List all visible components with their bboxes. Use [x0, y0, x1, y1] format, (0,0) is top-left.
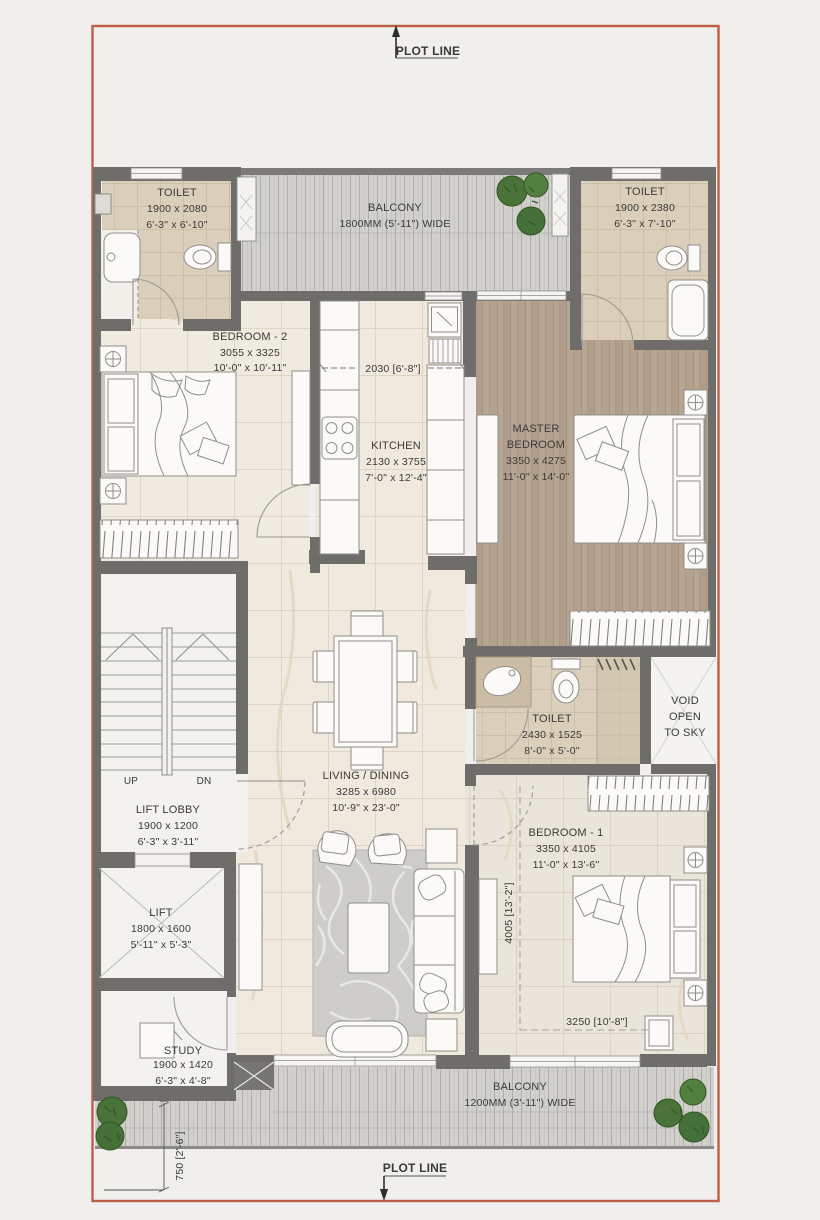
- svg-text:PLOT LINE: PLOT LINE: [383, 1161, 447, 1175]
- svg-text:4005 [13'-2"]: 4005 [13'-2"]: [503, 882, 515, 943]
- svg-text:10'-0" x 10'-11": 10'-0" x 10'-11": [214, 362, 287, 374]
- svg-text:MASTER: MASTER: [512, 423, 559, 435]
- svg-text:BEDROOM: BEDROOM: [507, 439, 565, 451]
- svg-text:5'-11" x 5'-3": 5'-11" x 5'-3": [131, 939, 192, 951]
- svg-text:1900 x 1420: 1900 x 1420: [153, 1059, 213, 1071]
- svg-text:LIFT LOBBY: LIFT LOBBY: [136, 804, 201, 816]
- svg-text:OPEN: OPEN: [669, 711, 701, 723]
- svg-text:BALCONY: BALCONY: [493, 1081, 547, 1093]
- svg-text:DN: DN: [197, 776, 212, 787]
- svg-text:6'-3" x 6'-10": 6'-3" x 6'-10": [146, 219, 208, 231]
- svg-text:2430 x 1525: 2430 x 1525: [522, 729, 582, 741]
- svg-text:1800MM (5'-11") WIDE: 1800MM (5'-11") WIDE: [339, 218, 450, 230]
- svg-text:7'-0" x 12'-4": 7'-0" x 12'-4": [365, 472, 427, 484]
- svg-text:TO SKY: TO SKY: [664, 727, 706, 739]
- svg-text:2130 x 3755: 2130 x 3755: [366, 456, 426, 468]
- svg-text:11'-0" x 13'-6": 11'-0" x 13'-6": [533, 859, 600, 871]
- svg-text:KITCHEN: KITCHEN: [371, 440, 421, 452]
- svg-text:11'-0" x 14'-0": 11'-0" x 14'-0": [503, 471, 570, 483]
- svg-text:LIFT: LIFT: [149, 907, 172, 919]
- svg-text:1900 x 2080: 1900 x 2080: [147, 203, 207, 215]
- svg-text:6'-3" x 3'-11": 6'-3" x 3'-11": [138, 836, 199, 848]
- svg-text:8'-0" x 5'-0": 8'-0" x 5'-0": [524, 745, 580, 757]
- svg-text:BEDROOM - 2: BEDROOM - 2: [213, 331, 288, 343]
- svg-text:LIVING / DINING: LIVING / DINING: [323, 770, 410, 782]
- svg-text:3350 x 4105: 3350 x 4105: [536, 843, 596, 855]
- svg-text:1900 x 1200: 1900 x 1200: [138, 820, 198, 832]
- svg-text:3350 x 4275: 3350 x 4275: [506, 455, 566, 467]
- svg-text:3250 [10'-8"]: 3250 [10'-8"]: [566, 1016, 627, 1028]
- svg-text:10'-9" x 23'-0": 10'-9" x 23'-0": [332, 802, 400, 814]
- svg-text:TOILET: TOILET: [532, 713, 572, 725]
- svg-text:1200MM (3'-11") WIDE: 1200MM (3'-11") WIDE: [464, 1097, 575, 1109]
- svg-text:6'-3" x 7'-10": 6'-3" x 7'-10": [614, 218, 676, 230]
- svg-text:STUDY: STUDY: [164, 1045, 203, 1057]
- svg-text:6'-3" x 4'-8": 6'-3" x 4'-8": [155, 1075, 211, 1087]
- svg-text:PLOT LINE: PLOT LINE: [396, 44, 460, 58]
- svg-text:2030 [6'-8"]: 2030 [6'-8"]: [365, 363, 420, 375]
- svg-text:UP: UP: [124, 776, 138, 787]
- svg-text:1800 x 1600: 1800 x 1600: [131, 923, 191, 935]
- svg-text:TOILET: TOILET: [625, 186, 665, 198]
- svg-text:1900 x 2380: 1900 x 2380: [615, 202, 675, 214]
- svg-text:750 [2'-6"]: 750 [2'-6"]: [174, 1131, 186, 1180]
- svg-text:3055 x 3325: 3055 x 3325: [220, 347, 280, 359]
- svg-text:VOID: VOID: [671, 695, 699, 707]
- svg-text:3285 x 6980: 3285 x 6980: [336, 786, 396, 798]
- svg-text:BALCONY: BALCONY: [368, 202, 422, 214]
- svg-text:TOILET: TOILET: [157, 187, 197, 199]
- svg-text:BEDROOM - 1: BEDROOM - 1: [529, 827, 604, 839]
